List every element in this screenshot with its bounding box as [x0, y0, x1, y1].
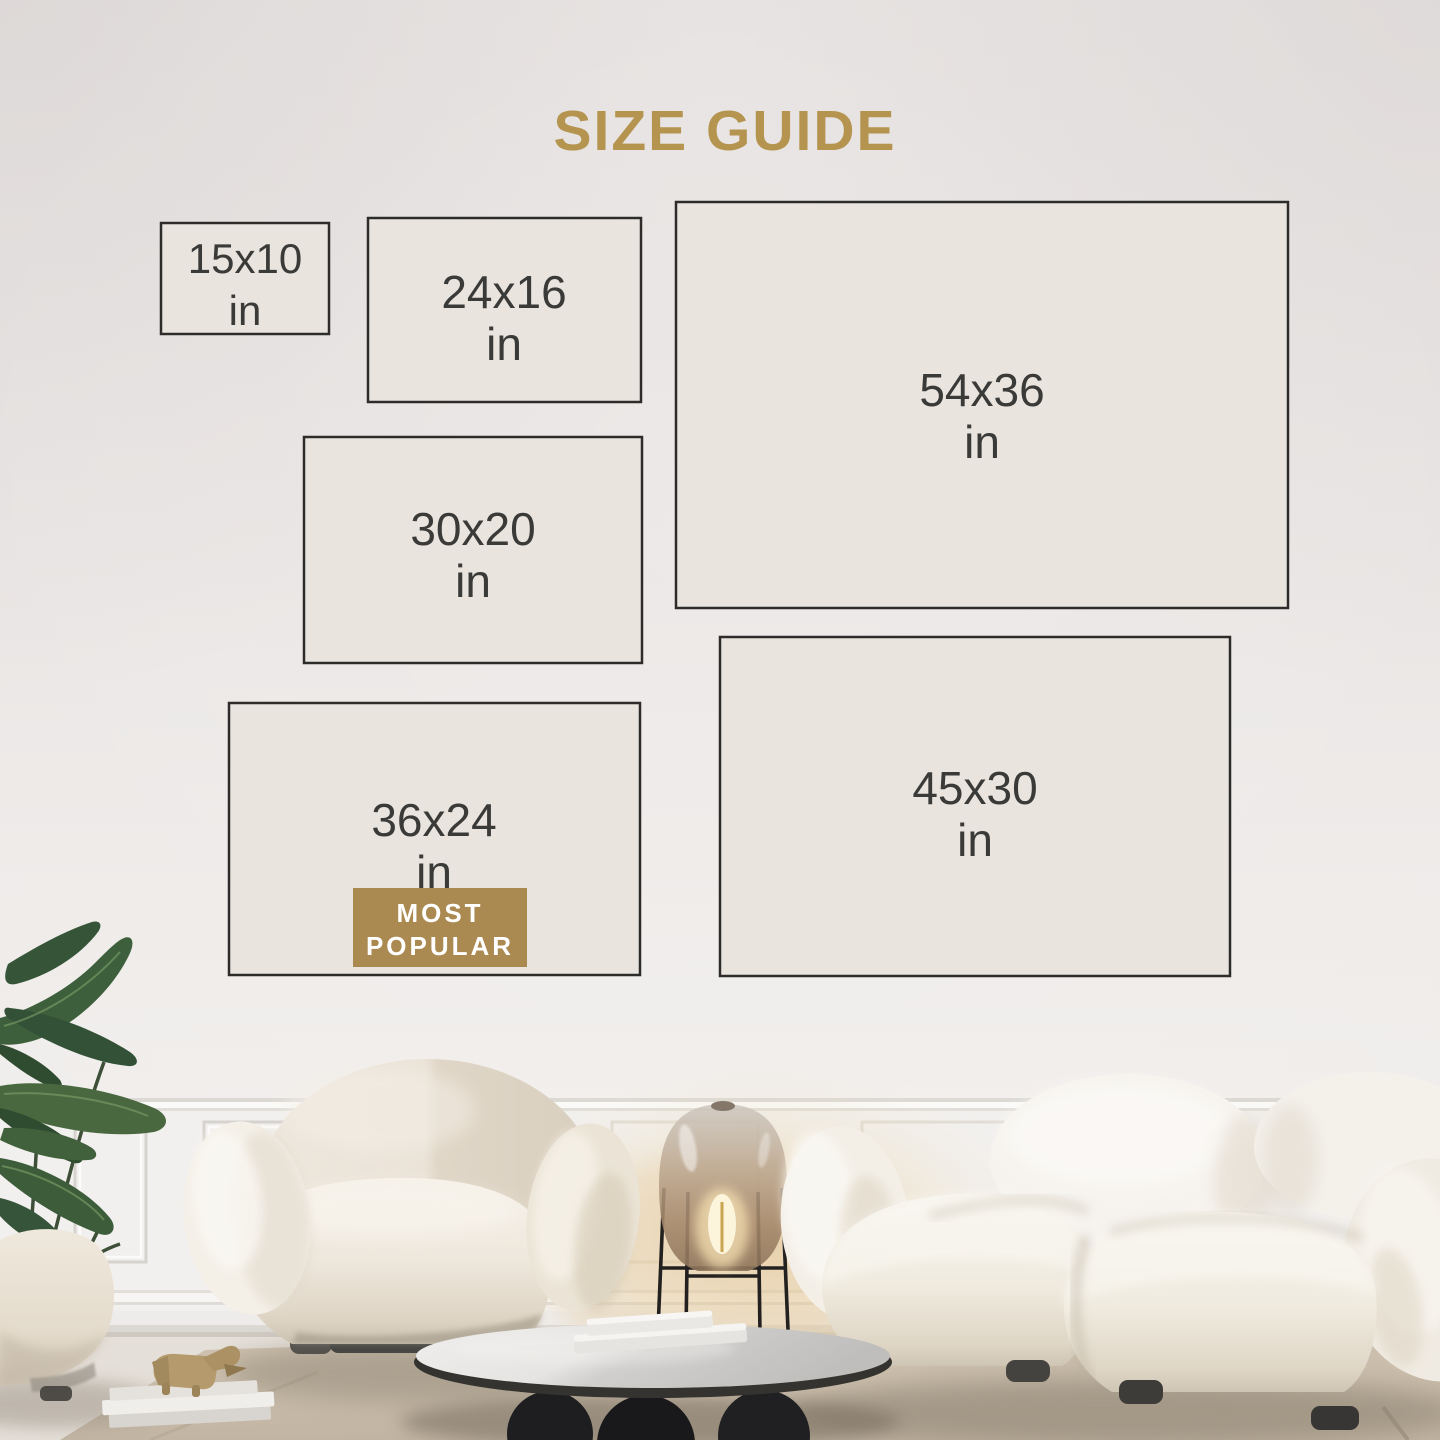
svg-text:POPULAR: POPULAR [366, 931, 514, 961]
svg-text:MOST: MOST [396, 898, 483, 928]
svg-text:SIZE GUIDE: SIZE GUIDE [553, 99, 896, 163]
svg-text:54x36: 54x36 [919, 364, 1044, 416]
svg-text:in: in [455, 555, 491, 607]
svg-text:45x30: 45x30 [912, 762, 1037, 814]
svg-text:in: in [957, 814, 993, 866]
svg-text:30x20: 30x20 [410, 503, 535, 555]
svg-text:15x10: 15x10 [188, 235, 302, 282]
svg-text:in: in [964, 416, 1000, 468]
svg-text:36x24: 36x24 [371, 794, 496, 846]
svg-text:24x16: 24x16 [441, 266, 566, 318]
svg-text:in: in [229, 287, 262, 334]
svg-text:in: in [486, 318, 522, 370]
